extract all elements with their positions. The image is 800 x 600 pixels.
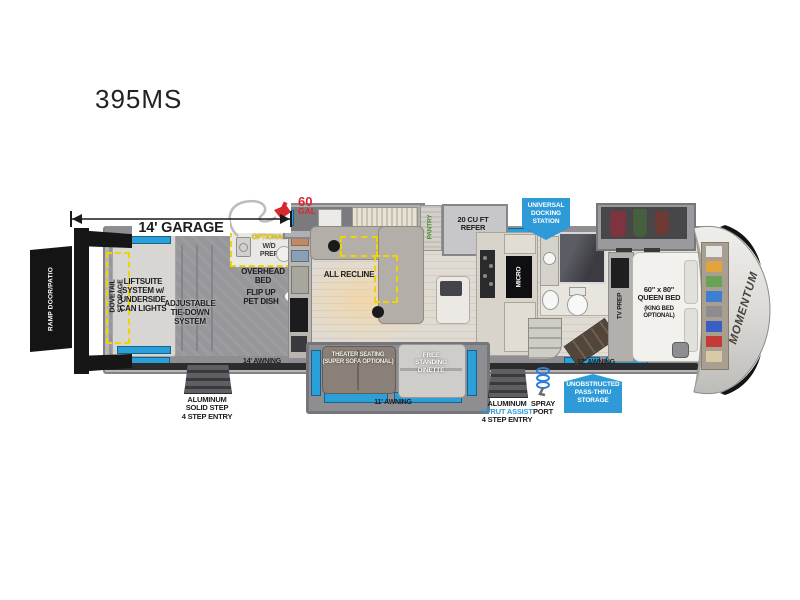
bed-label: 60" x 80" QUEEN BED	[634, 286, 684, 303]
main-entry-steps	[488, 368, 528, 398]
pedestal-sink-icon	[542, 290, 559, 310]
pantry-label: PANTRY	[426, 215, 433, 240]
bedroom-tv-icon	[611, 258, 629, 288]
theater-seating-label: THEATER SEATING (SUPER SOFA OPTIONAL)	[320, 352, 396, 365]
main-steps-label-3: 4 STEP ENTRY	[478, 416, 536, 424]
garage-dimension-text: 14' GARAGE	[132, 220, 229, 236]
closet-item	[706, 306, 722, 317]
dinette-label: FREE STANDING DINETTE	[400, 352, 462, 374]
bed-option-label: (KING BED OPTIONAL)	[634, 306, 684, 319]
stairs-curved	[528, 318, 562, 360]
fireplace-icon	[291, 336, 307, 352]
overhead-bed-label: OVERHEAD BED	[238, 268, 288, 286]
hanging-clothes-icon	[610, 211, 626, 237]
closet-item	[706, 321, 722, 332]
vanity-sink-icon	[543, 252, 556, 265]
closet-item	[706, 336, 722, 347]
pet-dish-label: FLIP UP PET DISH	[236, 289, 286, 307]
slide-window-right	[467, 350, 477, 396]
closet-item	[706, 246, 722, 257]
tie-down-track	[181, 245, 183, 351]
sofa-ottoman	[372, 306, 384, 318]
burner-icon	[483, 274, 487, 278]
toilet-bowl-icon	[567, 294, 588, 316]
closet-item	[706, 351, 722, 362]
micro-label: MICRO	[515, 267, 522, 288]
rear-steps-label: ALUMINUM SOLID STEP 4 STEP ENTRY	[176, 396, 238, 421]
slide-sink-icon	[318, 209, 342, 227]
ramp-door	[28, 222, 140, 378]
hanging-clothes-icon	[655, 211, 669, 235]
closet-item	[706, 276, 722, 287]
hanging-clothes-icon	[633, 209, 647, 237]
sofa-side-table	[328, 240, 340, 252]
burner-icon	[489, 282, 493, 286]
refer-label: 20 CU FT REFER	[444, 216, 502, 233]
tie-down-track	[196, 245, 198, 351]
spray-port-icon	[534, 366, 552, 398]
washer-door-icon	[239, 243, 248, 252]
garage-dimension-label: 14' GARAGE	[70, 204, 292, 236]
spray-port-label: SPRAY PORT	[524, 400, 562, 417]
shelf-item	[291, 250, 309, 262]
optional-recliner-zone-1	[340, 236, 378, 257]
rear-entry-steps	[184, 364, 232, 394]
tv-prep-label: TV PREP	[616, 293, 623, 319]
fuel-unit: GAL	[298, 207, 316, 216]
awning-rear-label: 14' AWNING	[238, 358, 286, 366]
passthru-storage-badge: UNOBSTRUCTED PASS-THRU STORAGE	[564, 374, 622, 413]
awning-front-label: 12' AWNING	[566, 359, 626, 367]
burner-icon	[489, 264, 493, 268]
closet-item	[706, 261, 722, 272]
ramp-door-label: RAMP DOOR/PATIO	[47, 267, 54, 331]
tie-down-label: ADJUSTABLE TIE-DOWN SYSTEM	[160, 300, 220, 327]
awning-mid-label: 11' AWNING	[356, 399, 430, 407]
floorplan-395ms: 395MS DOVETAIL STORAGE LIFTSUITE SYSTEM …	[0, 0, 800, 600]
island-sink-icon	[440, 281, 462, 296]
bedroom-cylinder	[672, 342, 689, 358]
kitchen-cabinet-top	[504, 234, 536, 254]
closet-item	[706, 291, 722, 302]
tie-down-track	[211, 245, 213, 351]
burner-icon	[483, 256, 487, 260]
all-recline-label: ALL RECLINE	[318, 271, 380, 280]
shelf-item	[291, 266, 309, 294]
tv-icon	[290, 298, 308, 332]
page-title: 395MS	[95, 84, 182, 115]
